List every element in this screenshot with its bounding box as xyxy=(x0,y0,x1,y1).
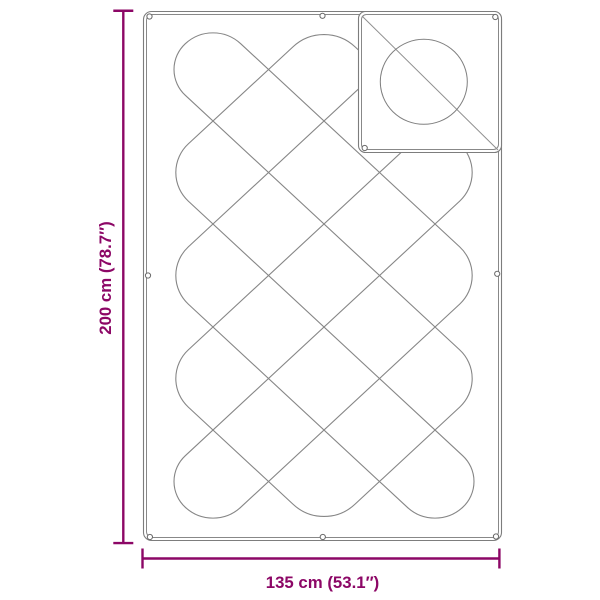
svg-text:135 cm (53.1″): 135 cm (53.1″) xyxy=(266,573,379,592)
svg-text:200 cm (78.7″): 200 cm (78.7″) xyxy=(96,221,115,334)
